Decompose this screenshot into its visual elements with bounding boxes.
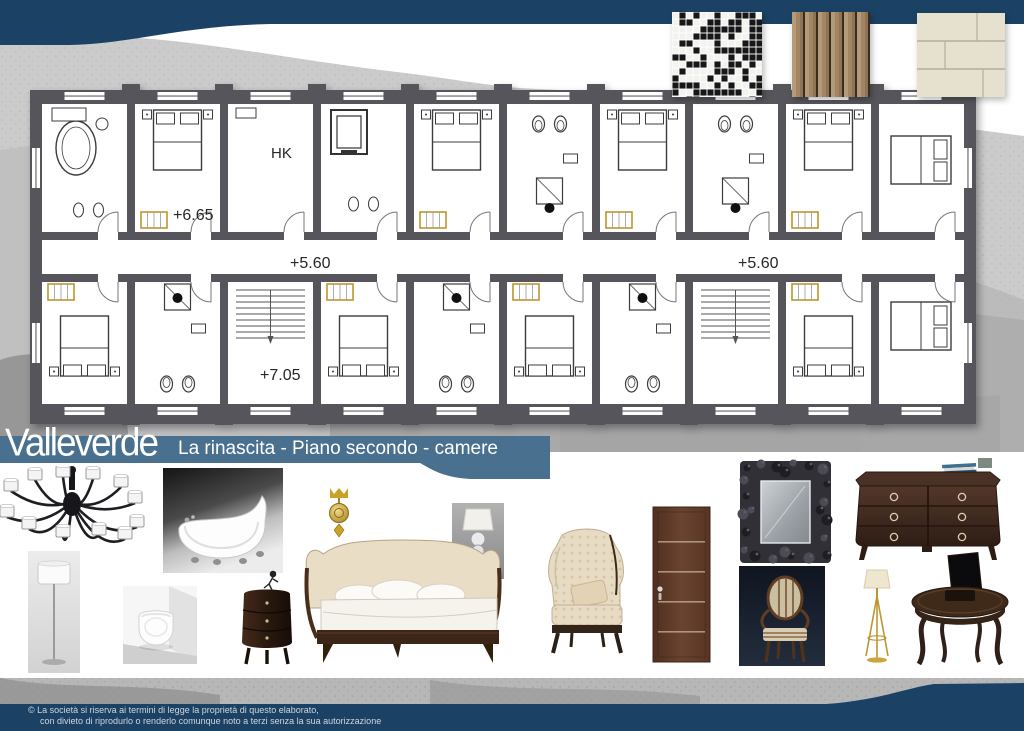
classic-chair-image <box>739 566 825 666</box>
plan-label-level-top: +6.65 <box>173 207 214 224</box>
gold-floor-lamp-image <box>856 566 898 666</box>
copyright-line-2: con divieto di riprodurlo o renderlo com… <box>28 716 381 727</box>
wall-sconce-image <box>320 486 358 538</box>
chandelier-image <box>0 466 145 561</box>
copyright-notice: © La società si riserva ai termini di le… <box>28 705 381 727</box>
plan-label-level-bottom: +7.05 <box>260 367 301 384</box>
door-image <box>648 505 714 665</box>
material-swatch-wood <box>792 12 870 97</box>
bed-image <box>293 538 513 664</box>
white-floor-lamp-image <box>28 551 80 673</box>
bathtub-image <box>163 468 283 573</box>
armchair-image <box>536 525 636 657</box>
plan-label-level-corridor-left: +5.60 <box>290 255 331 272</box>
page-subtitle: La rinascita - Piano secondo - camere <box>178 438 498 460</box>
mirror-image <box>737 458 834 566</box>
floor-plan: HK +6.65 +5.60 +5.60 +7.05 <box>28 84 978 432</box>
page-title: Valleverde <box>5 421 157 465</box>
wall-toilet-image <box>123 586 197 664</box>
presentation-board: HK +6.65 +5.60 +5.60 +7.05 Valleverde La… <box>0 0 1024 731</box>
title-band-curve <box>418 462 550 479</box>
material-swatch-beige-tile <box>917 13 1005 97</box>
nightstand-image <box>236 568 298 668</box>
plan-label-hk: HK <box>271 145 292 162</box>
oval-desk-image <box>903 546 1018 670</box>
plan-label-level-corridor-right: +5.60 <box>738 255 779 272</box>
copyright-line-1: © La società si riserva ai termini di le… <box>28 705 381 716</box>
material-swatch-mosaic <box>672 12 762 97</box>
